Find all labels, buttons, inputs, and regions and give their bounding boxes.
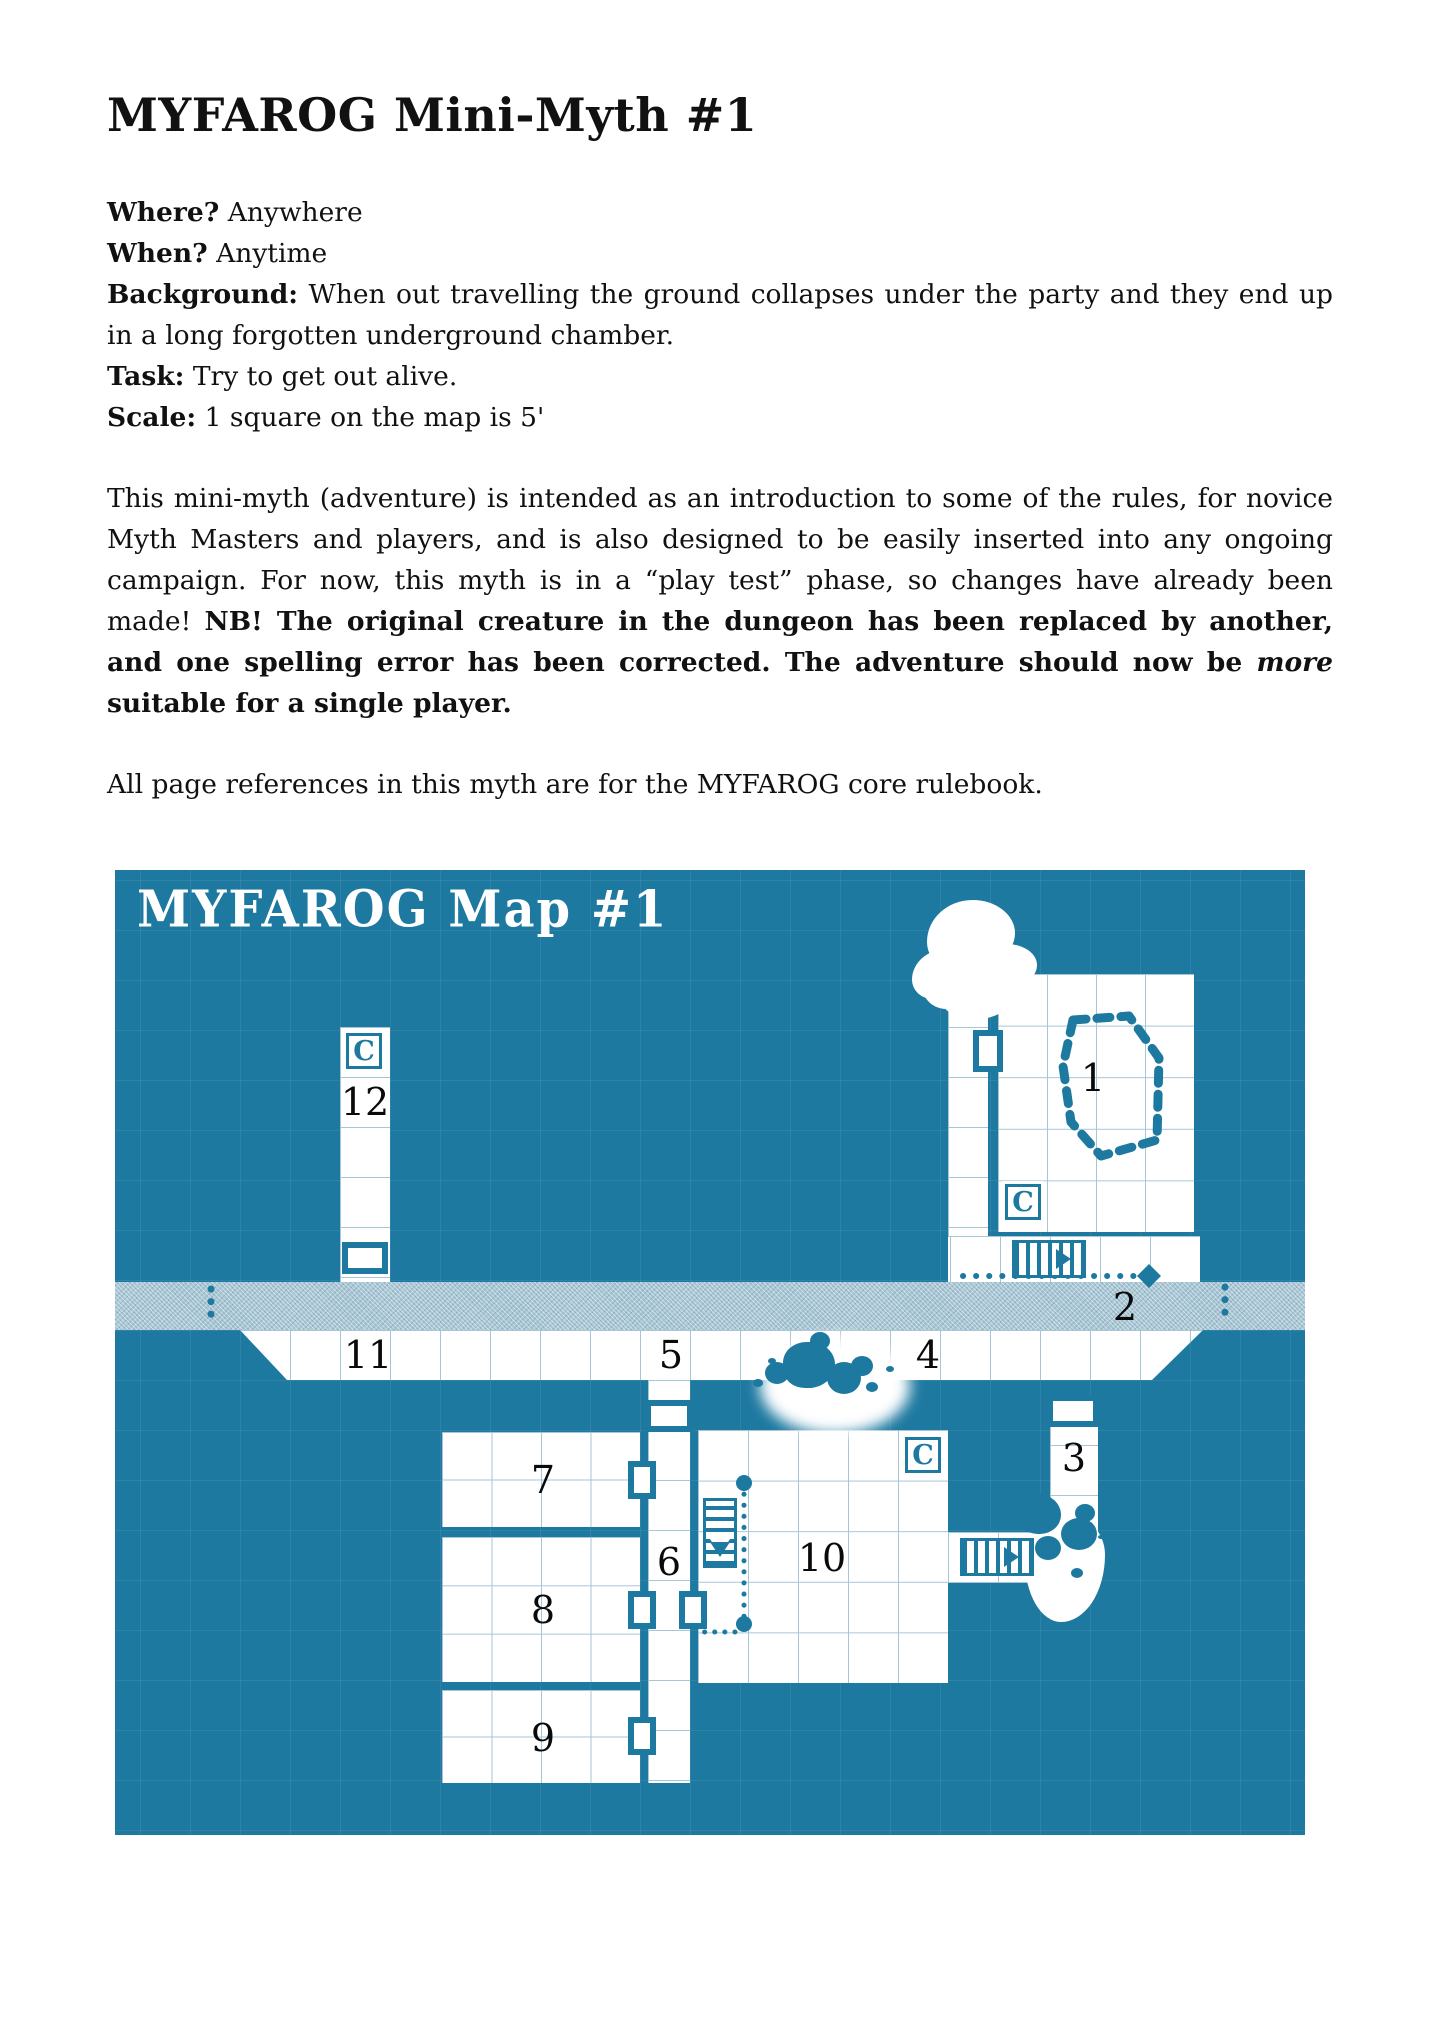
door-room5-south — [645, 1400, 693, 1432]
meta-background-label: Background: — [107, 279, 298, 310]
paragraph-bold-b: suitable for a single player. — [107, 688, 512, 719]
meta-task-value: Try to get out alive. — [193, 361, 457, 392]
meta-when-value: Anytime — [216, 238, 327, 269]
paragraph-bold-a: NB! The original creature in the dungeon… — [107, 606, 1333, 678]
meta-where-value: Anywhere — [228, 197, 363, 228]
intro-paragraph: This mini-myth (adventure) is intended a… — [107, 478, 1333, 724]
door-corridor6-room10 — [679, 1591, 707, 1629]
door-room9-east — [628, 1717, 656, 1755]
meta-when: When? Anytime — [107, 233, 1333, 274]
meta-where: Where? Anywhere — [107, 192, 1333, 233]
stairs-east-icon — [960, 1538, 1034, 1576]
paragraph-emphasis: more — [1256, 647, 1333, 678]
map-title: MYFAROG Map #1 — [137, 880, 668, 939]
door-room8-east — [628, 1591, 656, 1629]
document-page: MYFAROG Mini-Myth #1 Where? Anywhere Whe… — [0, 0, 1438, 2035]
path-diamond-icon — [1137, 1264, 1161, 1288]
stairs-room10-icon — [703, 1498, 737, 1568]
pit-dashed-outline — [1063, 1016, 1159, 1156]
dungeon-map: MYFAROG Map #1 C 1 C 12 2 11 5 4 — [115, 870, 1305, 1835]
door-room7-east — [628, 1461, 656, 1499]
meta-when-label: When? — [107, 238, 208, 269]
meta-task: Task: Try to get out alive. — [107, 356, 1333, 397]
map-annotations-overlay — [115, 870, 1305, 1835]
reference-note: All page references in this myth are for… — [107, 764, 1333, 805]
meta-where-label: Where? — [107, 197, 219, 228]
meta-scale: Scale: 1 square on the map is 5' — [107, 397, 1333, 438]
meta-scale-label: Scale: — [107, 402, 196, 433]
meta-task-label: Task: — [107, 361, 184, 392]
page-title: MYFAROG Mini-Myth #1 — [107, 88, 1333, 142]
path-node — [736, 1616, 752, 1632]
meta-background: Background: When out travelling the grou… — [107, 274, 1333, 356]
document-text: MYFAROG Mini-Myth #1 Where? Anywhere Whe… — [107, 88, 1333, 805]
door-room3-north — [1047, 1395, 1099, 1427]
door-room1-west — [973, 1030, 1003, 1072]
meta-scale-value: 1 square on the map is 5' — [205, 402, 545, 433]
stairs-room2-icon — [1012, 1240, 1086, 1278]
door-room12-south — [342, 1242, 388, 1274]
